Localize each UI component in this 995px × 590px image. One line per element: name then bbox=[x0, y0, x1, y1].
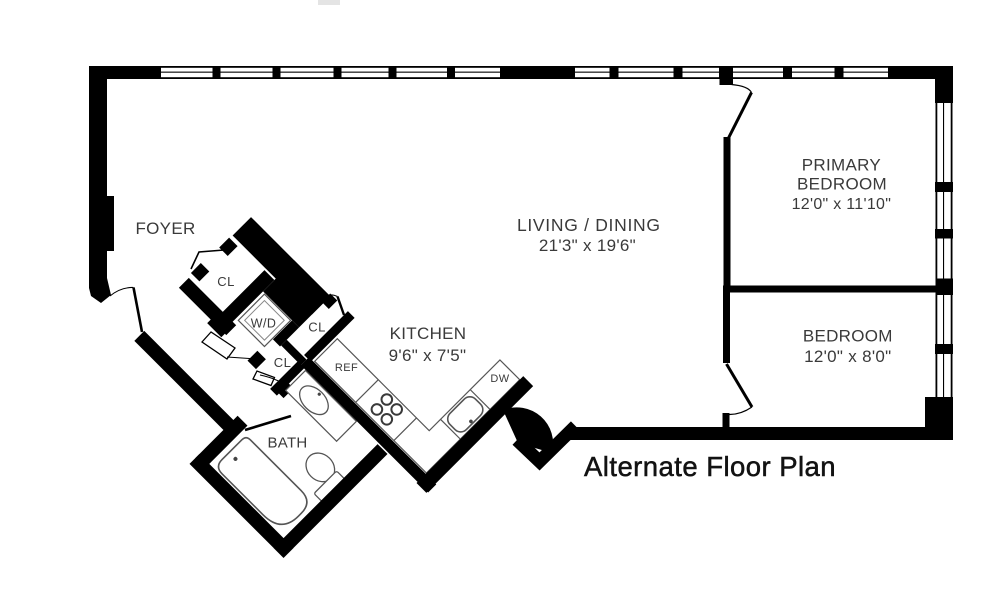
svg-text:CL: CL bbox=[308, 320, 325, 335]
svg-text:BATH: BATH bbox=[267, 435, 307, 452]
svg-text:Alternate Floor Plan: Alternate Floor Plan bbox=[584, 451, 836, 482]
svg-text:REF: REF bbox=[335, 362, 358, 374]
svg-text:KITCHEN: KITCHEN bbox=[390, 324, 467, 343]
svg-text:12'0" x 8'0": 12'0" x 8'0" bbox=[804, 347, 891, 366]
svg-text:FOYER: FOYER bbox=[135, 219, 195, 238]
svg-text:BEDROOM: BEDROOM bbox=[803, 327, 893, 346]
svg-text:LIVING / DINING: LIVING / DINING bbox=[517, 215, 661, 235]
svg-text:CL: CL bbox=[217, 274, 234, 289]
svg-text:BEDROOM: BEDROOM bbox=[797, 175, 887, 194]
svg-text:CL: CL bbox=[274, 355, 291, 370]
svg-text:9'6" x 7'5": 9'6" x 7'5" bbox=[389, 346, 467, 365]
svg-text:12'0" x 11'10": 12'0" x 11'10" bbox=[792, 196, 892, 213]
svg-text:W/D: W/D bbox=[251, 317, 277, 331]
svg-text:PRIMARY: PRIMARY bbox=[802, 156, 881, 175]
svg-text:21'3" x 19'6": 21'3" x 19'6" bbox=[539, 236, 636, 255]
svg-text:DW: DW bbox=[490, 373, 509, 385]
